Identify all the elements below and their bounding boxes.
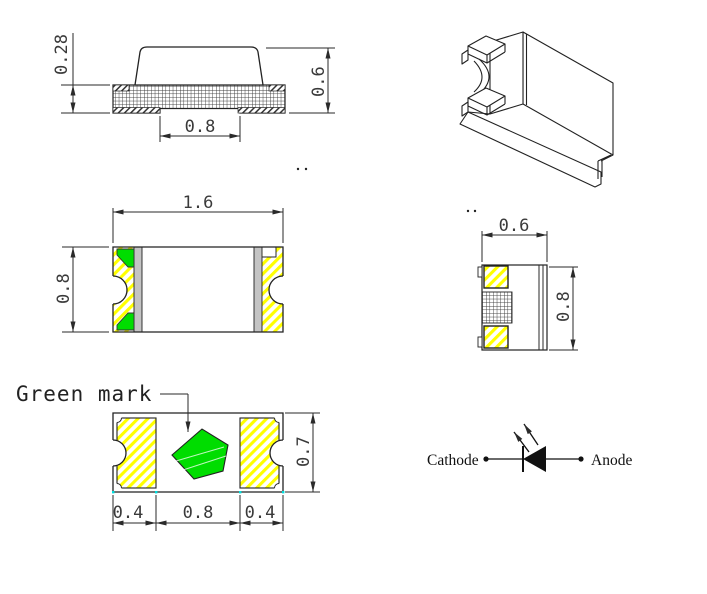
- terminal-joint-strip: [254, 247, 262, 332]
- dim-total-height: 0.6: [309, 66, 329, 97]
- dim-substrate-thickness: 0.28: [52, 34, 72, 75]
- dim-right-pad: 0.4: [245, 503, 276, 523]
- anode-label: Anode: [591, 452, 632, 469]
- light-emission-arrows: [514, 424, 538, 452]
- artifact-dots: [467, 210, 476, 212]
- cathode-label: Cathode: [427, 452, 479, 469]
- terminal-cap-hatch: [113, 108, 160, 114]
- drawing-canvas: 0.28 0.6 0.8: [0, 0, 707, 594]
- terminal-cap-hatch: [269, 85, 285, 91]
- side-view: 0.28 0.6 0.8: [52, 33, 335, 170]
- terminal-cap-hatch: [238, 108, 285, 114]
- led-body-side: [135, 47, 263, 85]
- end-substrate-grid: [482, 292, 512, 323]
- artifact-dots: [297, 168, 307, 170]
- dim-length: 1.6: [183, 193, 214, 213]
- terminal-tab: [478, 267, 482, 277]
- terminal-pad-3d: [462, 50, 468, 64]
- bottom-view: Green mark 0.4 0.8 0.4 0.7: [16, 382, 320, 531]
- diode-triangle: [523, 446, 546, 472]
- terminal-tab: [478, 337, 482, 347]
- terminal-joint-strip: [134, 247, 142, 332]
- dim-width: 0.8: [54, 273, 74, 304]
- perspective-view: [460, 32, 613, 212]
- green-mark-label: Green mark: [16, 382, 152, 406]
- polarity-symbol: Cathode Anode: [427, 424, 632, 472]
- dim-bottom-pad-width: 0.8: [185, 117, 216, 137]
- terminal-cap-hatch: [113, 85, 129, 91]
- end-view: 0.6 0.8: [478, 216, 578, 350]
- end-pad-hatch: [484, 326, 508, 348]
- led-mechanical-drawing: 0.28 0.6 0.8: [0, 0, 707, 594]
- top-view: 1.6 0.8: [54, 193, 297, 332]
- body-front-face-3d: [523, 32, 613, 155]
- dim-end-width: 0.6: [499, 216, 530, 236]
- anode-terminal-dot: [578, 456, 583, 461]
- dim-left-pad: 0.4: [113, 503, 144, 523]
- dim-end-height: 0.8: [554, 291, 574, 322]
- dim-body-width: 0.7: [294, 436, 314, 467]
- end-pad-hatch: [484, 266, 508, 288]
- dim-center-gap: 0.8: [183, 503, 214, 523]
